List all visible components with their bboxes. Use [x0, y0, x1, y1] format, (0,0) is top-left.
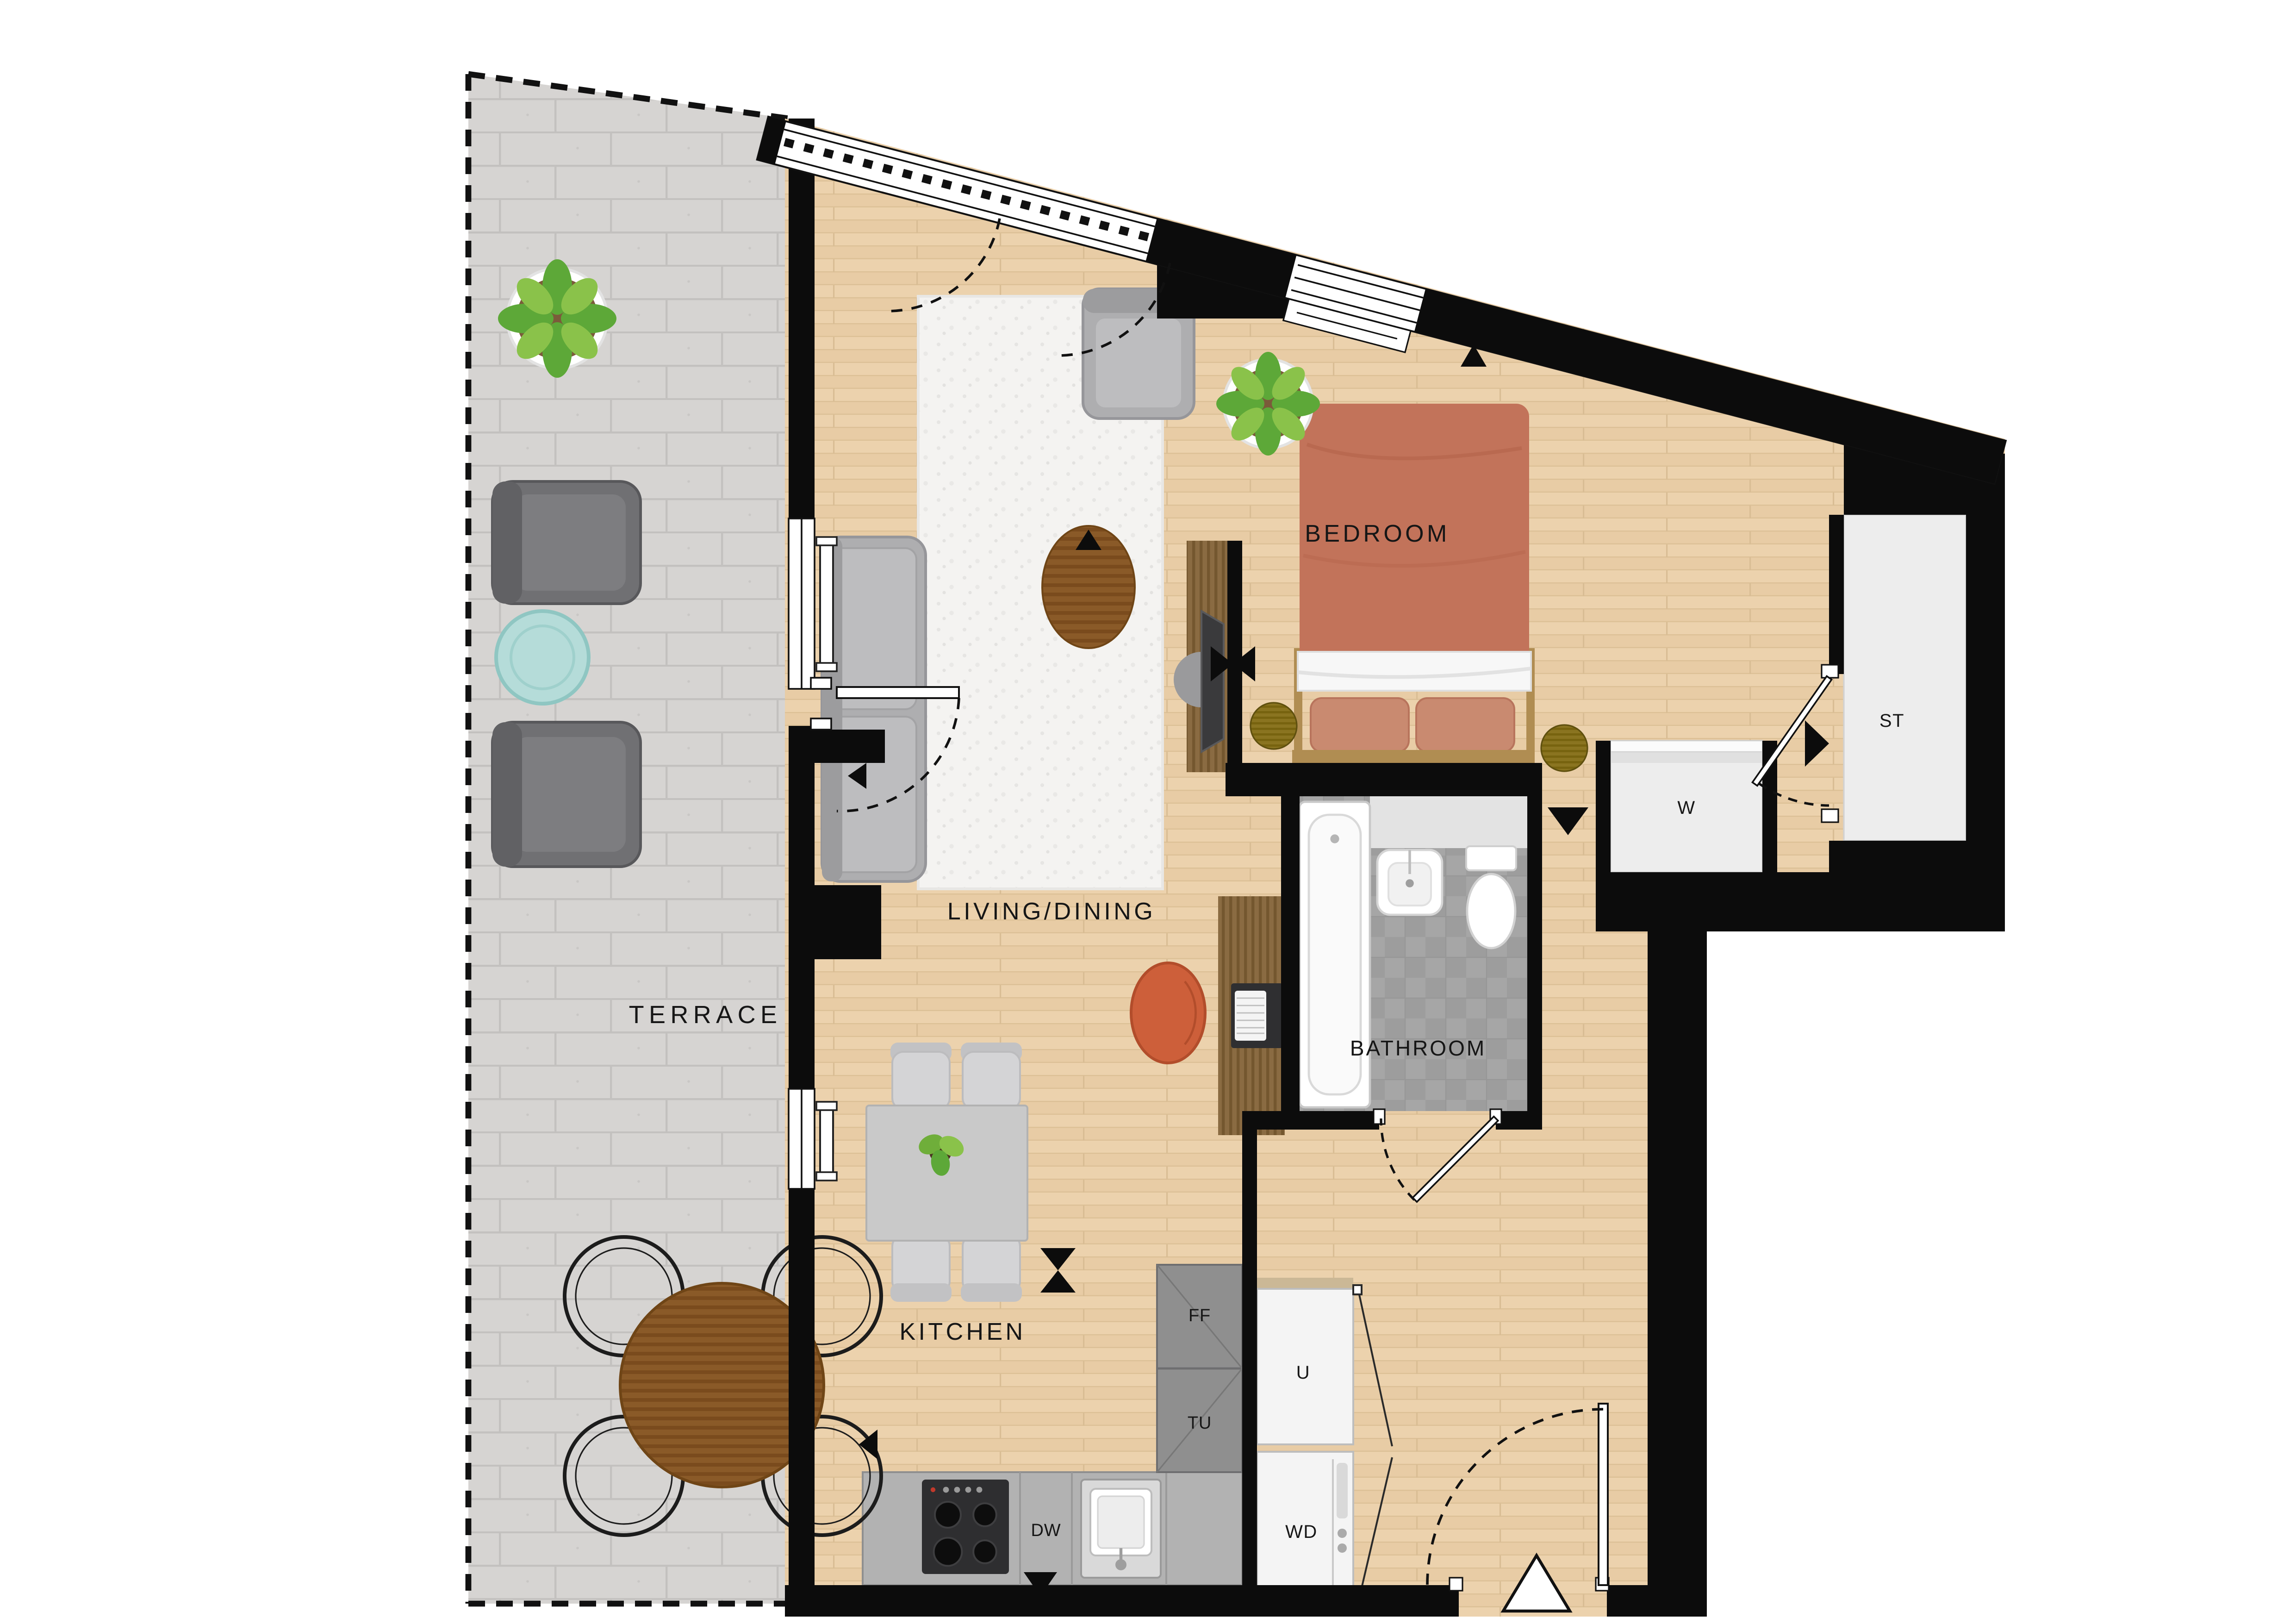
tv-icon [1201, 611, 1224, 752]
utility-cupboard [1257, 1278, 1353, 1444]
living-dining-label: LIVING/DINING [947, 897, 1156, 925]
sofa-icon [822, 537, 926, 881]
tall-unit-label: TU [1188, 1414, 1212, 1434]
window [789, 518, 837, 689]
radiator-icon [816, 537, 837, 671]
washer-dryer-label: WD [1285, 1523, 1318, 1543]
bathroom-label: BATHROOM [1350, 1039, 1486, 1061]
floor-plan-canvas [0, 0, 2296, 1624]
sink-icon [1081, 1480, 1161, 1578]
bedside-table-icon [1541, 725, 1587, 771]
kitchen-label: KITCHEN [899, 1318, 1026, 1345]
terrace-label: TERRACE [629, 1001, 782, 1029]
bathroom-area [1300, 796, 1527, 1111]
desk-icon [1218, 896, 1285, 1135]
store-cupboard-label: ST [1879, 712, 1904, 732]
wardrobe-label: W [1677, 799, 1695, 819]
floor-plan: TERRACE LIVING/DINING KITCHEN BEDROOM BA… [0, 0, 2296, 1624]
dishwasher-label: DW [1031, 1521, 1061, 1542]
outdoor-armchair-icon [492, 481, 641, 604]
coffee-table-icon [1042, 526, 1135, 648]
fridge-freezer-unit [1157, 1265, 1242, 1472]
window [789, 1089, 837, 1189]
bedroom-label: BEDROOM [1305, 519, 1450, 547]
toilet-icon [1466, 846, 1516, 948]
outdoor-armchair-icon [492, 722, 641, 867]
bedside-table-icon [1251, 703, 1297, 749]
fridge-freezer-label: FF [1188, 1306, 1211, 1327]
utility-label: U [1296, 1364, 1311, 1384]
desk-chair-icon [1131, 963, 1205, 1063]
laptop-icon [1231, 983, 1283, 1048]
hob-icon [922, 1480, 1009, 1574]
store-cupboard [1844, 515, 1966, 841]
basin-icon [1377, 850, 1442, 915]
bathtub-icon [1300, 802, 1370, 1107]
radiator-icon [816, 1102, 837, 1181]
